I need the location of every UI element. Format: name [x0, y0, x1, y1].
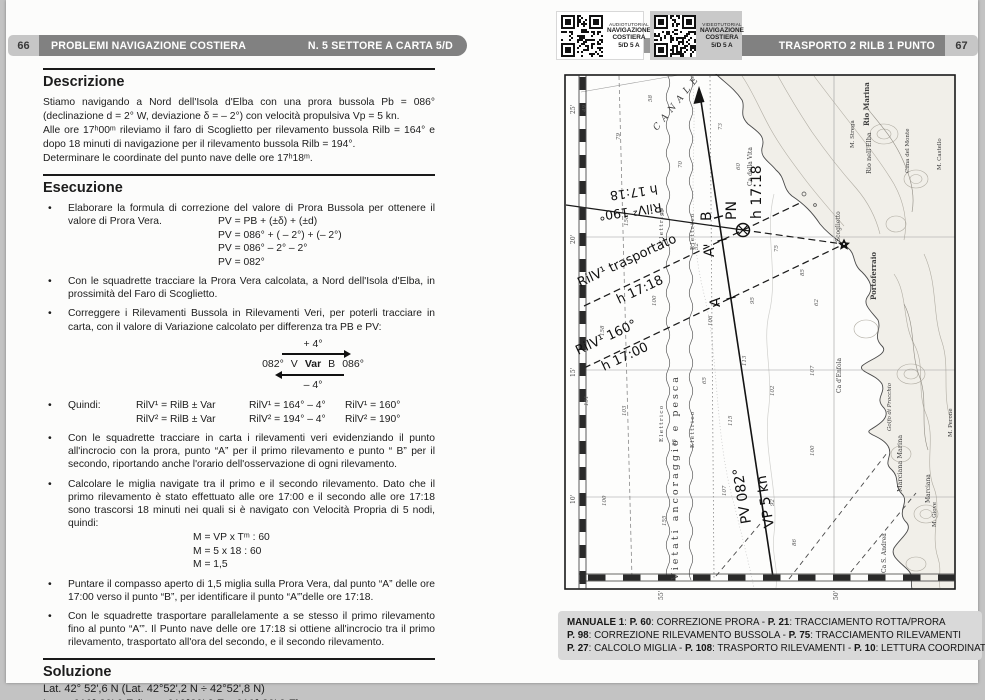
manuale-text: P. 27	[567, 643, 589, 654]
geo-label: 50'	[833, 590, 840, 600]
depth-label: 70	[678, 161, 684, 168]
depth-label: 62	[814, 299, 820, 306]
variation-plus-label: + 4°	[228, 338, 398, 350]
manuale-text: P. 75	[789, 630, 811, 641]
depth-label: 151	[584, 396, 590, 407]
qr-code-icon	[654, 15, 696, 57]
qr-audio-ref: 5/D 5 A	[607, 42, 651, 49]
depth-label: 155	[662, 515, 668, 526]
nav-label: B	[699, 211, 715, 221]
depth-label: 103	[622, 405, 628, 416]
variation-term: 082°	[262, 358, 284, 371]
geo-label: 25'	[570, 104, 577, 114]
depth-label: 102	[770, 385, 776, 396]
variation-term: Var	[305, 358, 321, 371]
manuale-text: : LETTURA COORDINATE	[876, 643, 985, 654]
bullet-body: Calcolare le miglia navigate tra il prim…	[68, 478, 435, 572]
manuale-line: P. 98: CORREZIONE RILEVAMENTO BUSSOLA - …	[567, 629, 973, 642]
manuale-line: MANUALE 1: P. 60: CORREZIONE PRORA - P. …	[567, 616, 973, 629]
depth-label: 85	[800, 269, 806, 276]
esecuzione-bullet: •Puntare il compasso aperto di 1,5 migli…	[43, 578, 435, 604]
bullet-dot: •	[43, 275, 68, 301]
depth-label: 106	[708, 315, 714, 326]
quindi-grid: RilV¹ = RilB ± VarRilV¹ = 164° – 4°RilV¹…	[136, 399, 435, 426]
depth-label: 49	[582, 105, 588, 113]
bullet-text: Correggere i Rilevamenti Bussola in Rile…	[68, 307, 435, 333]
manuale-text: MANUALE 1	[567, 617, 624, 628]
page-number-right: 67	[945, 35, 978, 56]
islet	[802, 192, 806, 196]
geo-label: M. Perone	[948, 408, 954, 437]
section-title-descrizione: Descrizione	[43, 74, 435, 90]
depth-label: 95	[750, 297, 756, 304]
quindi-label: Quindi:	[68, 399, 136, 426]
formula-line: PV = 086° + ( – 2°) + (– 2°)	[218, 229, 435, 242]
qr-code-icon	[561, 15, 603, 57]
qr-audio-title: NAVIGAZIONE COSTIERA	[607, 27, 651, 42]
quindi-block: Quindi:RilV¹ = RilB ± VarRilV¹ = 164° – …	[68, 399, 435, 426]
nav-label: PN	[724, 201, 740, 220]
variation-minus-label: – 4°	[228, 379, 398, 391]
bullet-text: Puntare il compasso aperto di 1,5 miglia…	[68, 578, 435, 604]
geo-label: 20'	[570, 234, 577, 244]
section-title-soluzione: Soluzione	[43, 664, 435, 680]
manuale-text: : CORREZIONE RILEVAMENTO BUSSOLA -	[589, 630, 789, 641]
geo-label: 55'	[658, 590, 665, 600]
section-rule	[43, 658, 435, 660]
bullet-body: Elaborare la formula di correzione del v…	[68, 202, 435, 269]
depth-label: 115	[728, 415, 734, 426]
formula-line: M = 1,5	[193, 558, 435, 571]
esecuzione-bullet: •Con le squadrette trasportare parallela…	[43, 610, 435, 650]
header-title-right: TRASPORTO 2 RILB 1 PUNTO	[779, 40, 935, 52]
qr-videotutorial: VIDEOTUTORIAL NAVIGAZIONE COSTIERA 5/D 5…	[650, 11, 742, 60]
geo-label: 15'	[570, 367, 577, 377]
qr-video-ref: 5/D 5 A	[700, 42, 744, 49]
depth-label: 86	[792, 539, 798, 546]
quindi-equation: RilV² = 194° – 4°	[249, 413, 345, 426]
manuale-text: : CORREZIONE PRORA -	[651, 617, 768, 628]
variation-term: 086°	[342, 358, 364, 371]
bullet-dot: •	[43, 478, 68, 572]
manuale-text: P. 108	[685, 643, 712, 654]
geo b-label: Portoferraio	[869, 252, 878, 300]
quindi-equation: RilV¹ = 164° – 4°	[249, 399, 345, 412]
geo-label: 10'	[570, 494, 577, 504]
geo i-label: Golfo di Procchio	[887, 382, 893, 431]
bullet-body: Quindi:RilV¹ = RilB ± VarRilV¹ = 164° – …	[68, 399, 435, 426]
geo-label: Elettrico	[690, 410, 696, 448]
esecuzione-bullets: •Elaborare la formula di correzione del …	[43, 202, 435, 650]
bullet-body: Puntare il compasso aperto di 1,5 miglia…	[68, 578, 435, 604]
soluzione-lines: Lat. 42° 52',6 N (Lat. 42°52',2 N ÷ 42°5…	[43, 682, 435, 700]
descrizione-paragraph: Stiamo navigando a Nord dell'Isola d'Elb…	[43, 96, 435, 123]
manuale-text: P. 60	[630, 617, 652, 628]
page-number-left: 66	[8, 35, 39, 56]
formula-line: M = 5 x 18 : 60	[193, 545, 435, 558]
depth-label: 58	[648, 95, 654, 102]
depth-label: 107	[810, 365, 816, 376]
nautical-chart: CANALEVietati ancoraggio e pescaElettric…	[564, 74, 956, 602]
esecuzione-bullet: •Calcolare le miglia navigate tra il pri…	[43, 478, 435, 572]
section-rule	[43, 174, 435, 176]
depth-label: 65	[702, 377, 708, 384]
section-rule	[43, 68, 435, 70]
bullet-text: Con le squadrette trasportare parallelam…	[68, 610, 435, 650]
variation-mid-row: 082°VVarB086°	[228, 358, 398, 371]
qr-video-title: NAVIGAZIONE COSTIERA	[700, 27, 744, 42]
esecuzione-bullet: •Con le squadrette tracciare in carta i …	[43, 432, 435, 472]
geo-label: Ca S. Andrea	[881, 533, 888, 573]
manuale-text: P. 21	[768, 617, 790, 628]
book-photo: 66 PROBLEMI NAVIGAZIONE COSTIERA N. 5 SE…	[0, 0, 985, 700]
depth-label: 52	[694, 243, 700, 250]
bullet-text: Con le squadrette tracciare la Prora Ver…	[68, 275, 435, 301]
quindi-equation: RilV² = RilB ± Var	[136, 413, 249, 426]
geo-label: Ca d'Enfola	[836, 357, 843, 393]
geo-label: M. Giove	[932, 502, 938, 527]
bullet-body: Con le squadrette tracciare in carta i r…	[68, 432, 435, 472]
manuale-text: : CALCOLO MIGLIA -	[589, 643, 685, 654]
formula-line: PV = 082°	[218, 256, 435, 269]
formula-line: PV = PB + (±δ) + (±d)	[218, 215, 435, 228]
header-sub-left: N. 5 SETTORE A CARTA 5/D	[308, 40, 453, 52]
bullet-text: Con le squadrette tracciare in carta i r…	[68, 432, 435, 472]
left-page-content: Descrizione Stiamo navigando a Nord dell…	[43, 60, 435, 700]
header-title-left: PROBLEMI NAVIGAZIONE COSTIERA	[51, 40, 246, 52]
depth-label: 60	[736, 163, 742, 170]
bullet-dot: •	[43, 399, 68, 426]
geo-label: Vietati ancoraggio e pesca	[670, 374, 681, 581]
depth-label: 75	[774, 245, 780, 252]
depth-label: 73	[718, 123, 724, 130]
arrow-right-icon	[282, 353, 344, 355]
bullet-text: Calcolare le miglia navigate tra il prim…	[68, 478, 435, 531]
esecuzione-bullet: •Con le squadrette tracciare la Prora Ve…	[43, 275, 435, 301]
manuale-text: : TRACCIAMENTO RILEVAMENTI	[810, 630, 961, 641]
islet	[814, 204, 817, 207]
geo-label: Cima del Monte	[905, 129, 911, 173]
quindi-equation: RilV² = 190°	[345, 413, 435, 426]
esecuzione-bullet: •Quindi:RilV¹ = RilB ± VarRilV¹ = 164° –…	[43, 399, 435, 426]
qr-audiotutorial: AUDIOTUTORIAL NAVIGAZIONE COSTIERA 5/D 5…	[556, 11, 644, 60]
bullet-dot: •	[43, 610, 68, 650]
depth-label: 79	[616, 133, 622, 140]
arrow-left-icon	[282, 374, 344, 376]
bullet-dot: •	[43, 578, 68, 604]
esecuzione-bullet: •Elaborare la formula di correzione del …	[43, 202, 435, 269]
variation-term: B	[328, 358, 335, 371]
formula-line: M = VP x Tᵐ : 60	[193, 531, 435, 544]
geo-label: Marciana	[925, 474, 932, 503]
manuale-text: P. 98	[567, 630, 589, 641]
bullet-dot: •	[43, 202, 68, 269]
geo-label: M. Strega	[850, 119, 856, 148]
bullet-dot: •	[43, 307, 68, 392]
geo-label: Elettrico	[659, 404, 665, 442]
geo b-label: Rio Marina	[862, 82, 871, 126]
bullet-body: Con le squadrette trasportare parallelam…	[68, 610, 435, 650]
header-bar-left: PROBLEMI NAVIGAZIONE COSTIERA N. 5 SETTO…	[39, 35, 467, 56]
bullet-body: Con le squadrette tracciare la Prora Ver…	[68, 275, 435, 301]
depth-label: 107	[722, 485, 728, 496]
variation-term: V	[291, 358, 298, 371]
geo-label: M. Castello	[937, 138, 943, 170]
manuale-text: : TRACCIAMENTO ROTTA/PRORA	[789, 617, 945, 628]
variation-diagram: + 4°082°VVarB086°– 4°	[228, 338, 398, 391]
quindi-equation: RilV¹ = RilB ± Var	[136, 399, 249, 412]
depth-label: 113	[742, 355, 748, 366]
formula-block: PV = PB + (±δ) + (±d)PV = 086° + ( – 2°)…	[218, 215, 435, 269]
descrizione-paragraphs: Stiamo navigando a Nord dell'Isola d'Elb…	[43, 96, 435, 166]
manuale-text: : TRASPORTO RILEVAMENTI -	[712, 643, 854, 654]
bullet-body: Correggere i Rilevamenti Bussola in Rile…	[68, 307, 435, 392]
formula-block: M = VP x Tᵐ : 60M = 5 x 18 : 60M = 1,5	[193, 531, 435, 571]
formula-line: PV = 086° – 2° – 2°	[218, 242, 435, 255]
nav-label: h 17:18	[749, 165, 765, 219]
soluzione-line: Lat. 42° 52',6 N (Lat. 42°52',2 N ÷ 42°5…	[43, 682, 435, 698]
geo-label: Rio nell'Elba	[865, 132, 873, 174]
manuale-reference-box: MANUALE 1: P. 60: CORREZIONE PRORA - P. …	[558, 611, 982, 660]
depth-label: 100	[810, 445, 816, 456]
depth-label: 100	[652, 295, 658, 306]
section-title-esecuzione: Esecuzione	[43, 180, 435, 196]
geo-label: Scoglietto	[835, 211, 842, 242]
manuale-line: P. 27: CALCOLO MIGLIA - P. 108: TRASPORT…	[567, 642, 973, 655]
descrizione-paragraph: Alle ore 17ʰ00ᵐ rileviamo il faro di Sco…	[43, 124, 435, 151]
nav-label: A'	[702, 244, 718, 257]
manuale-text: P. 10	[854, 643, 876, 654]
geo-label: Marciana Marina	[896, 435, 904, 492]
esecuzione-bullet: •Correggere i Rilevamenti Bussola in Ril…	[43, 307, 435, 392]
depth-label: 85	[672, 439, 678, 446]
book-spread: 66 PROBLEMI NAVIGAZIONE COSTIERA N. 5 SE…	[6, 0, 978, 683]
depth-label: 100	[602, 495, 608, 506]
quindi-equation: RilV¹ = 160°	[345, 399, 435, 412]
nav-label: A	[708, 297, 724, 307]
bullet-dot: •	[43, 432, 68, 472]
descrizione-paragraph: Determinare le coordinate del punto nave…	[43, 152, 435, 166]
